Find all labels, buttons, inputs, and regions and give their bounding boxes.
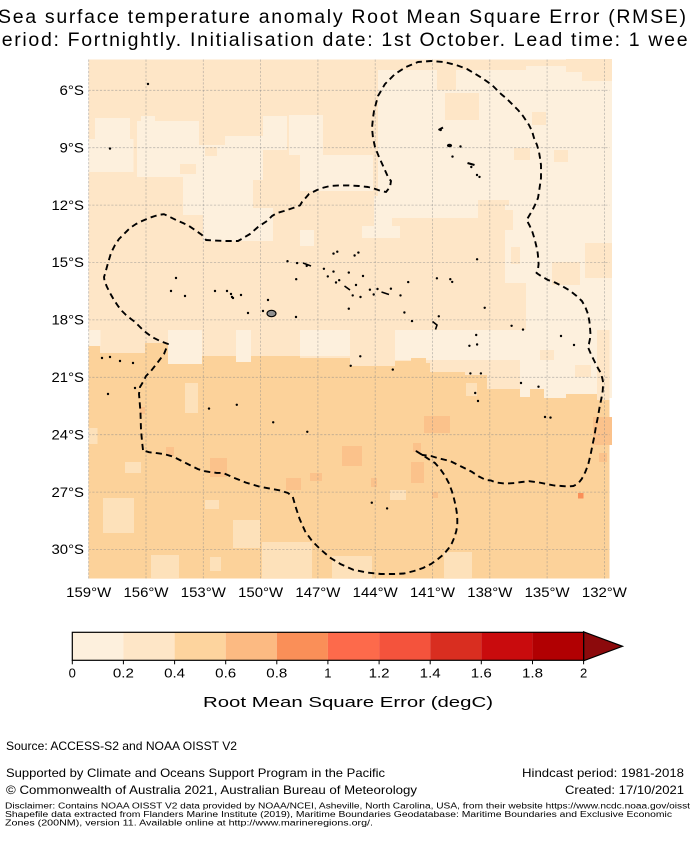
svg-text:2: 2 — [580, 666, 587, 681]
svg-text:132°W: 132°W — [582, 585, 627, 600]
svg-text:Created: 17/10/2021: Created: 17/10/2021 — [565, 783, 684, 797]
svg-text:144°W: 144°W — [353, 585, 398, 600]
svg-text:© Commonwealth of Australia 20: © Commonwealth of Australia 2021, Austra… — [6, 783, 417, 797]
svg-text:0.2: 0.2 — [113, 666, 134, 681]
svg-text:0.4: 0.4 — [164, 666, 185, 681]
svg-text:Period: Fortnightly. Initialis: Period: Fortnightly. Initialisation date… — [0, 29, 690, 51]
svg-text:1.8: 1.8 — [522, 666, 543, 681]
svg-text:1.4: 1.4 — [420, 666, 441, 681]
svg-text:Root Mean Square Error (degC): Root Mean Square Error (degC) — [203, 694, 493, 711]
svg-text:0: 0 — [69, 666, 76, 681]
svg-text:12°S: 12°S — [52, 198, 85, 213]
svg-text:147°W: 147°W — [295, 585, 340, 600]
svg-text:24°S: 24°S — [52, 427, 85, 442]
svg-text:141°W: 141°W — [410, 585, 455, 600]
svg-text:150°W: 150°W — [238, 585, 283, 600]
svg-text:21°S: 21°S — [52, 370, 85, 385]
svg-text:Hindcast period: 1981-2018: Hindcast period: 1981-2018 — [522, 766, 684, 780]
svg-text:0.6: 0.6 — [215, 666, 236, 681]
svg-text:135°W: 135°W — [525, 585, 570, 600]
svg-text:18°S: 18°S — [52, 313, 85, 328]
svg-text:1: 1 — [324, 666, 331, 681]
svg-text:6°S: 6°S — [60, 83, 85, 98]
svg-text:156°W: 156°W — [124, 585, 169, 600]
svg-text:138°W: 138°W — [467, 585, 512, 600]
svg-text:1.2: 1.2 — [369, 666, 390, 681]
svg-text:159°W: 159°W — [66, 585, 111, 600]
svg-text:1.6: 1.6 — [471, 666, 492, 681]
svg-text:Zones (200NM), version 11. Ava: Zones (200NM), version 11. Available onl… — [5, 819, 373, 828]
svg-text:Source: ACCESS-S2 and NOAA OIS: Source: ACCESS-S2 and NOAA OISST V2 — [6, 739, 237, 753]
svg-text:27°S: 27°S — [52, 485, 85, 500]
svg-text:153°W: 153°W — [181, 585, 226, 600]
svg-text:15°S: 15°S — [52, 255, 85, 270]
svg-text:0.8: 0.8 — [266, 666, 287, 681]
svg-text:Supported by Climate and Ocean: Supported by Climate and Oceans Support … — [6, 766, 385, 780]
svg-text:9°S: 9°S — [60, 140, 85, 155]
svg-text:30°S: 30°S — [52, 542, 85, 557]
